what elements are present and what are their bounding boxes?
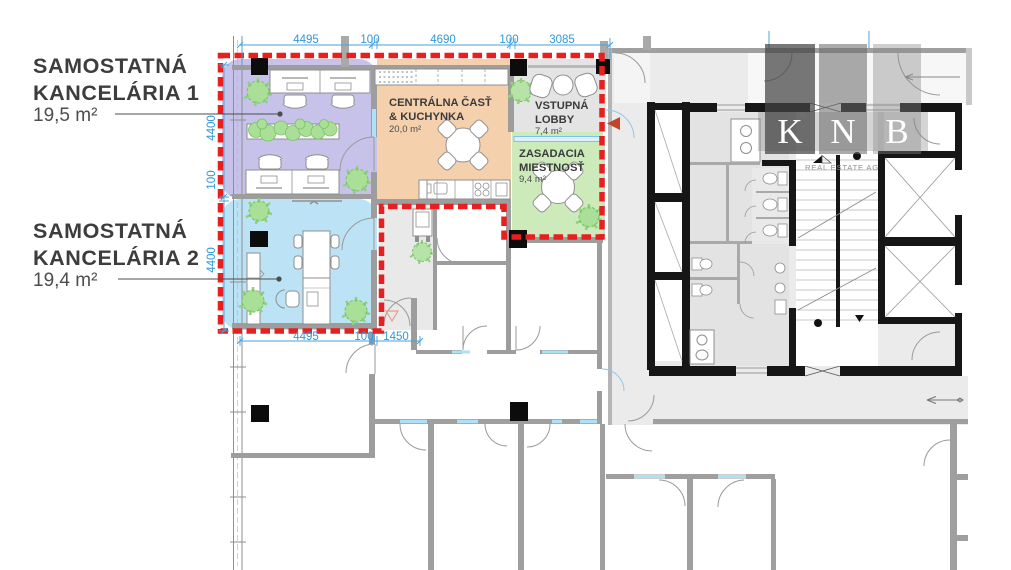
svg-text:20,0 m²: 20,0 m² [389, 124, 421, 135]
svg-text:N: N [830, 112, 855, 151]
svg-text:B: B [885, 112, 908, 151]
svg-text:19,5 m²: 19,5 m² [33, 105, 97, 126]
svg-text:9,4 m²: 9,4 m² [519, 174, 546, 185]
svg-text:& KUCHYNKA: & KUCHYNKA [389, 111, 464, 123]
svg-text:100: 100 [206, 170, 218, 189]
svg-text:KANCELÁRIA 1: KANCELÁRIA 1 [33, 80, 199, 105]
svg-text:ZASADACIA: ZASADACIA [519, 148, 585, 160]
svg-text:100: 100 [360, 34, 379, 46]
svg-text:19,4 m²: 19,4 m² [33, 270, 97, 291]
svg-text:100: 100 [499, 34, 518, 46]
svg-text:4400: 4400 [206, 247, 218, 273]
svg-text:MIESTNOSŤ: MIESTNOSŤ [519, 161, 584, 174]
svg-text:4400: 4400 [206, 115, 218, 141]
svg-text:VSTUPNÁ: VSTUPNÁ [535, 99, 588, 112]
svg-text:1450: 1450 [383, 331, 409, 343]
svg-text:LOBBY: LOBBY [535, 114, 575, 126]
svg-text:4495: 4495 [293, 331, 319, 343]
svg-text:3085: 3085 [549, 34, 575, 46]
svg-text:4690: 4690 [430, 34, 456, 46]
svg-text:SAMOSTATNÁ: SAMOSTATNÁ [33, 218, 188, 243]
svg-text:CENTRÁLNA ČASŤ: CENTRÁLNA ČASŤ [389, 96, 492, 109]
svg-text:100: 100 [354, 331, 373, 343]
svg-text:4495: 4495 [293, 34, 319, 46]
svg-text:SAMOSTATNÁ: SAMOSTATNÁ [33, 53, 188, 78]
svg-text:KANCELÁRIA 2: KANCELÁRIA 2 [33, 245, 199, 270]
svg-text:K: K [777, 112, 802, 151]
svg-text:7,4 m²: 7,4 m² [535, 126, 562, 137]
